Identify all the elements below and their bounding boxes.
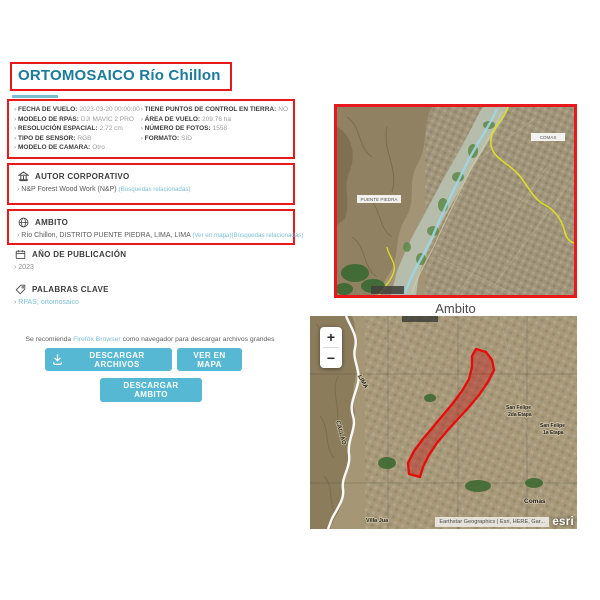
tag-icon (14, 283, 26, 295)
ambito-section: AMBITO Río Chillon, DISTRITO PUENTE PIED… (7, 209, 295, 245)
globe-icon (17, 216, 29, 228)
map-zoom-control: + − (320, 327, 342, 368)
publicacion-heading: AÑO DE PUBLICACIÓN (32, 250, 126, 259)
metadata-item: NÚMERO DE FOTOS:1558 (141, 124, 288, 134)
download-icon (51, 354, 63, 366)
institution-icon (17, 170, 29, 182)
descargar-ambito-button[interactable]: DESCARGAR AMBITO (100, 378, 202, 402)
metadata-panel: FECHA DE VUELO:2023-03-20 00:00:00 MODEL… (7, 99, 295, 159)
map-label-san-felipe-2: San Felipe (506, 405, 531, 411)
browser-recommendation-note: Se recomienda Firefox Browser como naveg… (0, 336, 300, 343)
page: ORTOMOSAICO Río Chillon FECHA DE VUELO:2… (0, 0, 600, 600)
metadata-item: RESOLUCIÓN ESPACIAL:2.72 cm (14, 124, 141, 134)
zoom-out-button[interactable]: − (320, 348, 342, 368)
metadata-item: FECHA DE VUELO:2023-03-20 00:00:00 (14, 105, 141, 115)
map-caption: Ambito (334, 301, 577, 316)
ver-en-mapa-button[interactable]: VER EN MAPA (177, 348, 242, 371)
metadata-item: FORMATO:SID (141, 134, 288, 144)
autor-heading: AUTOR CORPORATIVO (35, 172, 130, 181)
metadata-item: TIENE PUNTOS DE CONTROL EN TIERRA:NO (141, 105, 288, 115)
ambito-location: Río Chillon, DISTRITO PUENTE PIEDRA, LIM… (21, 232, 190, 239)
svg-text:2da Etapa: 2da Etapa (508, 412, 532, 418)
esri-logo: esri (552, 516, 574, 528)
metadata-item: MODELO DE CAMARA:Otro (14, 143, 141, 153)
autor-related-link[interactable]: (Búsquedas relacionadas) (119, 186, 191, 193)
map-attribution: Earthstar Geographics | Esri, HERE, Gar.… (435, 517, 549, 527)
descargar-archivos-button[interactable]: DESCARGAR ARCHIVOS (45, 348, 172, 371)
svg-text:1a Etapa: 1a Etapa (543, 430, 564, 436)
metadata-column-left: FECHA DE VUELO:2023-03-20 00:00:00 MODEL… (14, 105, 141, 153)
ambito-heading: AMBITO (35, 218, 68, 227)
page-title-highlight: ORTOMOSAICO Río Chillon (10, 62, 232, 91)
keywords-item: RPAS, ortomosaico (14, 299, 109, 306)
map-label-villa: Villa Jua (366, 518, 389, 524)
keyword-links[interactable]: RPAS, ortomosaico (18, 299, 79, 306)
calendar-icon (14, 248, 26, 260)
publicacion-year: 2023 (14, 264, 126, 271)
ver-en-mapa-link[interactable]: (Ver en mapa) (192, 232, 231, 239)
palabras-section: PALABRAS CLAVE RPAS, ortomosaico (14, 283, 109, 306)
title-underline (12, 95, 58, 98)
autor-corporativo-section: AUTOR CORPORATIVO N&P Forest Wood Work (… (7, 163, 295, 205)
zoom-in-button[interactable]: + (320, 327, 342, 347)
metadata-item: MODELO DE RPAS:DJI MAVIC 2 PRO (14, 115, 141, 125)
autor-name[interactable]: N&P Forest Wood Work (N&P) (21, 186, 116, 193)
map-label-comas: COMAS (540, 135, 557, 140)
map-label-san-felipe-1: San Felipe (540, 423, 565, 429)
palabras-heading: PALABRAS CLAVE (32, 285, 109, 294)
metadata-column-right: TIENE PUNTOS DE CONTROL EN TIERRA:NO ÁRE… (141, 105, 288, 153)
metadata-item: TIPO DE SENSOR:RGB (14, 134, 141, 144)
autor-item: N&P Forest Wood Work (N&P) (Búsquedas re… (17, 186, 285, 193)
ambito-item: Río Chillon, DISTRITO PUENTE PIEDRA, LIM… (17, 232, 285, 239)
firefox-link[interactable]: Firefox Browser (73, 336, 121, 343)
interactive-map[interactable]: LIMA CALLAO San Felipe 2da Etapa San Fel… (310, 316, 577, 529)
map-label-comas-2: Comas (524, 498, 546, 505)
map-label-puente-piedra: PUENTE PIEDRA (360, 197, 398, 202)
page-title: ORTOMOSAICO Río Chillon (18, 67, 221, 84)
metadata-item: ÁREA DE VUELO:209.76 ha (141, 115, 288, 125)
ambito-related-link[interactable]: (Búsquedas relacionadas) (232, 232, 304, 239)
publicacion-section: AÑO DE PUBLICACIÓN 2023 (14, 248, 126, 271)
ambito-preview-map: PUENTE PIEDRA COMAS (334, 104, 577, 298)
